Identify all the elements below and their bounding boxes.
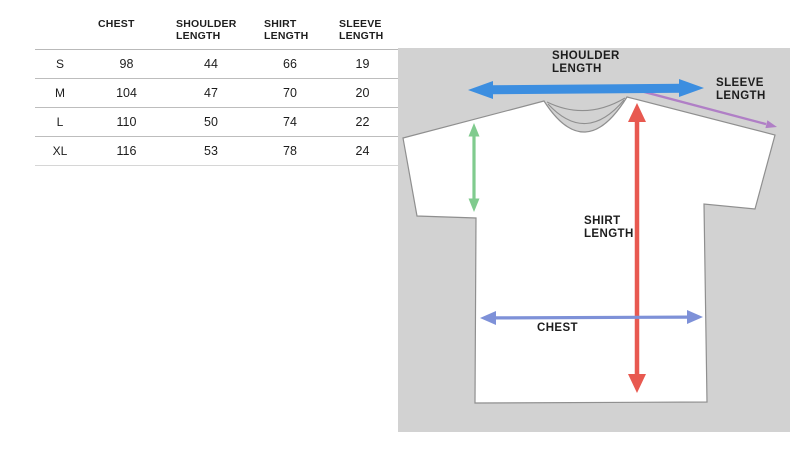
shoulder-length-arrow — [468, 79, 704, 99]
shoulder-length-value: 53 — [168, 137, 254, 166]
size-column-header — [35, 16, 85, 50]
size-chart-table: CHEST SHOULDER LENGTH SHIRT LENGTH SLEEV… — [35, 16, 399, 166]
size-label: L — [35, 108, 85, 137]
table-row-l: L 110 50 74 22 — [35, 108, 399, 137]
sleeve-length-column-header: SLEEVE LENGTH — [326, 16, 399, 50]
chest-column-header: CHEST — [85, 16, 168, 50]
shirt-length-label: SHIRT LENGTH — [584, 215, 634, 241]
sleeve-length-value: 19 — [326, 50, 399, 79]
size-chart: CHEST SHOULDER LENGTH SHIRT LENGTH SLEEV… — [35, 16, 355, 166]
shirt-length-column-header: SHIRT LENGTH — [254, 16, 326, 50]
collar-back-curve — [547, 98, 625, 111]
shirt-length-value: 70 — [254, 79, 326, 108]
size-chart-header-row: CHEST SHOULDER LENGTH SHIRT LENGTH SLEEV… — [35, 16, 399, 50]
tshirt-measurement-diagram: SHOULDER LENGTH SLEEVE LENGTH SHIRT LENG… — [398, 48, 790, 432]
shoulder-length-column-header: SHOULDER LENGTH — [168, 16, 254, 50]
shirt-length-value: 74 — [254, 108, 326, 137]
table-row-xl: XL 116 53 78 24 — [35, 137, 399, 166]
shoulder-length-label: SHOULDER LENGTH — [552, 50, 620, 76]
shoulder-length-value: 44 — [168, 50, 254, 79]
chest-value: 116 — [85, 137, 168, 166]
chest-value: 98 — [85, 50, 168, 79]
sleeve-length-value: 22 — [326, 108, 399, 137]
shirt-length-value: 66 — [254, 50, 326, 79]
size-label: S — [35, 50, 85, 79]
size-label: M — [35, 79, 85, 108]
chest-label: CHEST — [537, 322, 578, 335]
chest-value: 110 — [85, 108, 168, 137]
sleeve-length-value: 20 — [326, 79, 399, 108]
shoulder-length-value: 50 — [168, 108, 254, 137]
sleeve-length-value: 24 — [326, 137, 399, 166]
shirt-length-value: 78 — [254, 137, 326, 166]
sleeve-length-label: SLEEVE LENGTH — [716, 77, 766, 103]
table-row-m: M 104 47 70 20 — [35, 79, 399, 108]
table-row-s: S 98 44 66 19 — [35, 50, 399, 79]
shoulder-length-value: 47 — [168, 79, 254, 108]
chest-value: 104 — [85, 79, 168, 108]
size-label: XL — [35, 137, 85, 166]
tshirt-outline — [403, 97, 775, 403]
